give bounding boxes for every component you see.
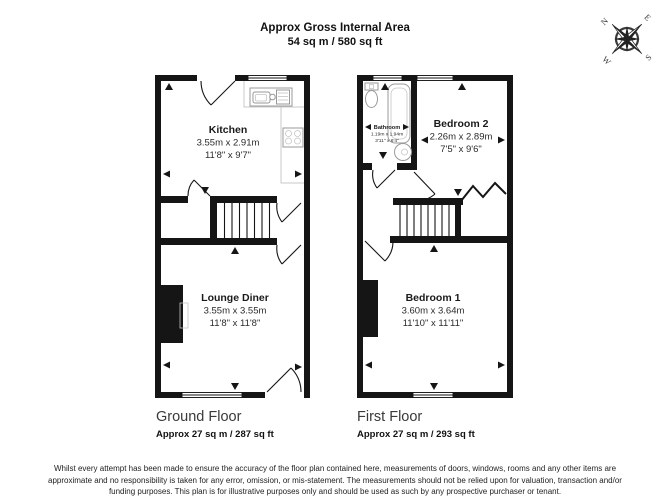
first-floor-plan: Bathroom 1.19m x 1.94m 3'11" x 6'4" Bedr… — [357, 75, 513, 400]
first-floor-caption: First Floor Approx 27 sq m / 293 sq ft — [357, 409, 475, 440]
room-metric: 3.60m x 3.64m — [402, 306, 465, 317]
bathroom-label: Bathroom 1.19m x 1.94m 3'11" x 6'4" — [371, 125, 403, 144]
ground-floor-area: Approx 27 sq m / 287 sq ft — [156, 429, 274, 440]
kitchen-sink — [250, 88, 292, 106]
ground-floor-plan: Kitchen 3.55m x 2.91m 11'8" x 9'7" Loung… — [155, 75, 310, 400]
room-name: Kitchen — [209, 124, 248, 136]
page-title: Approx Gross Internal Area 54 sq m / 580… — [0, 22, 670, 48]
ground-floor-caption: Ground Floor Approx 27 sq m / 287 sq ft — [156, 409, 274, 440]
kitchen-hob — [283, 128, 303, 147]
room-name: Bedroom 1 — [406, 292, 461, 304]
compass-north-label: N — [599, 16, 610, 27]
room-imperial: 11'8" x 9'7" — [205, 150, 251, 161]
compass-rose-icon: N E S W — [595, 8, 665, 78]
room-metric: 3.55m x 2.91m — [197, 138, 260, 149]
gross-area-title: Approx Gross Internal Area — [0, 22, 670, 34]
room-name: Bedroom 2 — [434, 118, 489, 130]
room-name: Lounge Diner — [201, 292, 269, 304]
bathroom-basin — [395, 144, 412, 161]
first-floor-name: First Floor — [357, 409, 475, 425]
bedroom1-chimney-breast — [363, 280, 378, 337]
bedroom1-label: Bedroom 1 3.60m x 3.64m 11'10" x 11'11" — [402, 292, 465, 329]
floorplan-page: Approx Gross Internal Area 54 sq m / 580… — [0, 0, 670, 503]
room-metric: 2.26m x 2.89m — [430, 132, 493, 143]
bathroom-toilet — [365, 83, 378, 108]
room-name: Bathroom — [374, 125, 400, 131]
compass-west-label: W — [600, 54, 613, 67]
ground-floor-name: Ground Floor — [156, 409, 274, 425]
room-imperial: 11'8" x 11'8" — [210, 318, 261, 329]
first-floor-area: Approx 27 sq m / 293 sq ft — [357, 429, 475, 440]
room-imperial: 3'11" x 6'4" — [375, 138, 399, 144]
disclaimer-text: Whilst every attempt has been made to en… — [42, 463, 628, 498]
lounge-diner-label: Lounge Diner 3.55m x 3.55m 11'8" x 11'8" — [201, 292, 269, 329]
compass-south-label: S — [643, 52, 654, 63]
room-metric: 1.19m x 1.94m — [371, 132, 403, 138]
room-imperial: 11'10" x 11'11" — [403, 318, 464, 329]
room-imperial: 7'5" x 9'6" — [440, 144, 482, 155]
compass-east-label: E — [642, 12, 653, 23]
gross-area-value: 54 sq m / 580 sq ft — [0, 36, 670, 48]
room-metric: 3.55m x 3.55m — [204, 306, 267, 317]
